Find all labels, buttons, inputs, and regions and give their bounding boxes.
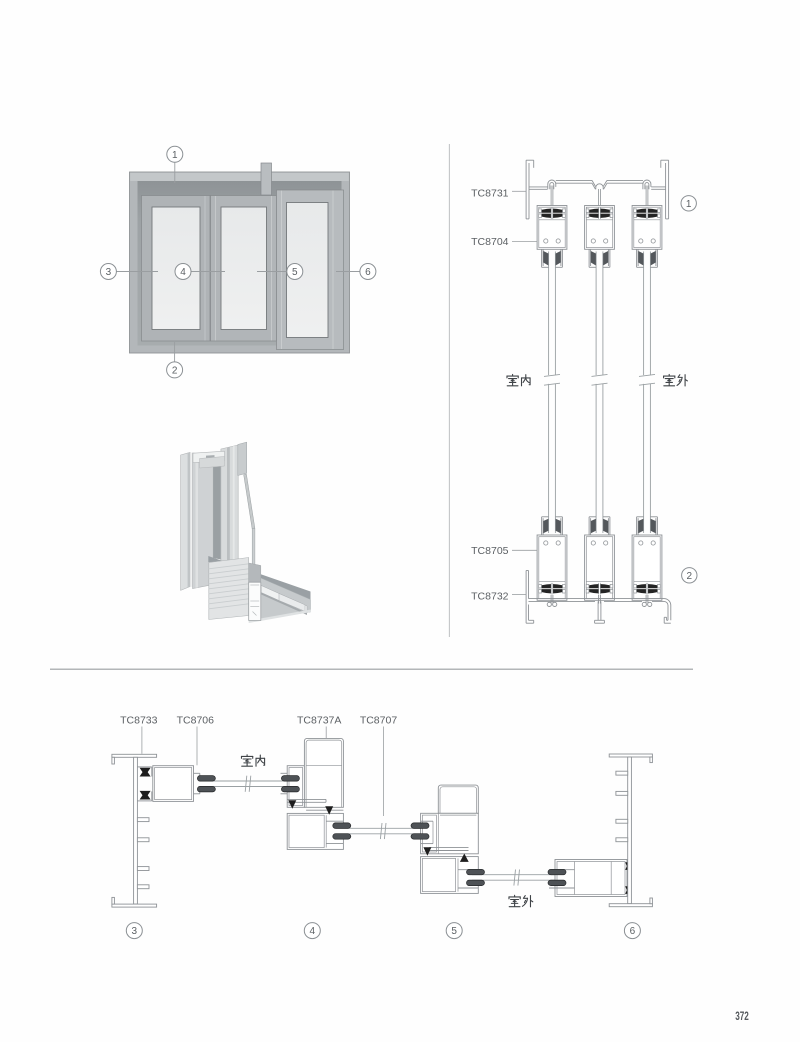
- svg-text:TC8704: TC8704: [471, 236, 509, 248]
- svg-text:1: 1: [686, 199, 692, 210]
- svg-text:TC8737A: TC8737A: [297, 715, 341, 727]
- svg-text:2: 2: [687, 571, 693, 582]
- svg-text:TC8732: TC8732: [471, 591, 509, 603]
- svg-text:TC8706: TC8706: [177, 715, 215, 727]
- svg-text:6: 6: [365, 267, 371, 278]
- svg-text:4: 4: [180, 267, 186, 278]
- svg-text:4: 4: [310, 926, 316, 937]
- svg-text:5: 5: [292, 267, 298, 278]
- svg-text:TC8707: TC8707: [360, 715, 398, 727]
- svg-text:372: 372: [735, 1009, 749, 1023]
- svg-text:5: 5: [451, 926, 457, 937]
- svg-text:3: 3: [132, 926, 138, 937]
- svg-text:3: 3: [106, 267, 112, 278]
- svg-text:TC8705: TC8705: [471, 545, 509, 557]
- svg-text:6: 6: [630, 926, 636, 937]
- svg-text:1: 1: [172, 150, 178, 161]
- svg-text:TC8731: TC8731: [471, 187, 509, 199]
- svg-text:2: 2: [172, 366, 178, 377]
- svg-text:TC8733: TC8733: [120, 715, 158, 727]
